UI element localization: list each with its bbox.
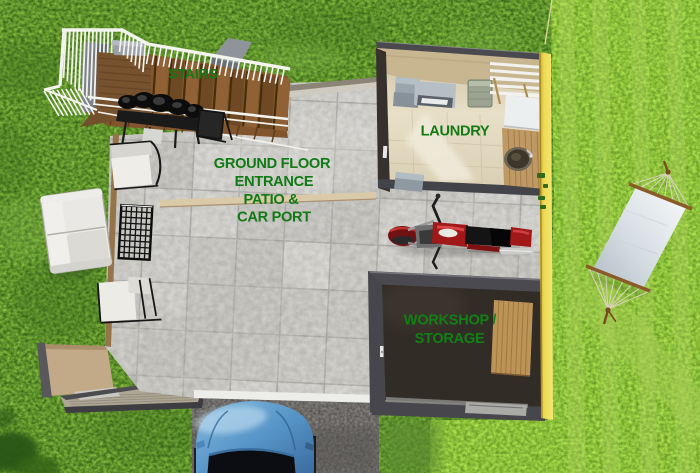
svg-text:STORAGE: STORAGE <box>415 331 485 347</box>
svg-text:LAUNDRY: LAUNDRY <box>421 124 490 140</box>
svg-text:STAIRS: STAIRS <box>168 67 218 83</box>
svg-text:GROUND FLOOR: GROUND FLOOR <box>214 156 331 172</box>
svg-text:PATIO &: PATIO & <box>244 192 300 208</box>
svg-text:WORKSHOP /: WORKSHOP / <box>404 313 497 329</box>
svg-text:CAR PORT: CAR PORT <box>237 210 311 226</box>
svg-text:ENTRANCE: ENTRANCE <box>235 174 314 190</box>
